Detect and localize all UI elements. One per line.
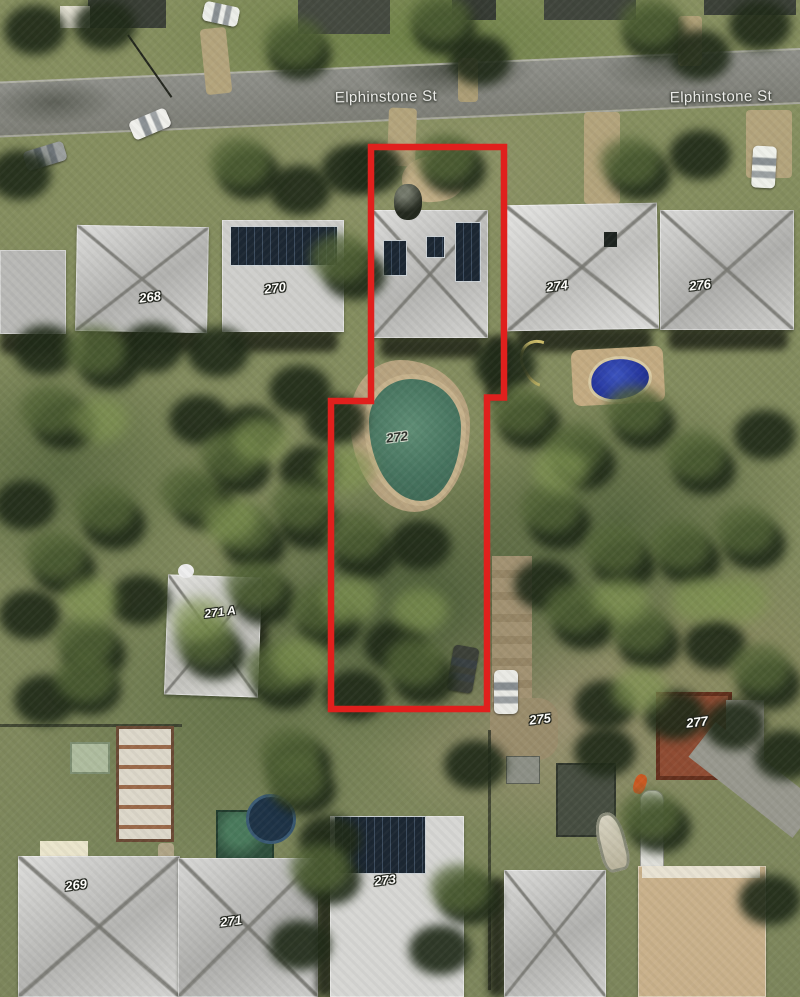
roof-top-carport <box>60 6 90 28</box>
roof-top-row-1 <box>88 0 166 28</box>
street-label-elphinstone-1: Elphinstone St <box>335 88 438 107</box>
roof-top-row-5 <box>704 0 796 15</box>
driveway-274 <box>584 112 620 204</box>
car-white-verge <box>751 145 777 188</box>
roof-271a <box>164 574 262 697</box>
car-gray <box>22 140 68 171</box>
solar-panels-270 <box>230 226 338 266</box>
roof-276 <box>660 210 794 330</box>
roof-top-row-4 <box>544 0 636 20</box>
street-label-elphinstone-2: Elphinstone St <box>670 88 773 107</box>
roof-271 <box>178 858 318 997</box>
roof-edge-white <box>642 866 760 878</box>
lot-label-271: 271 <box>219 912 242 930</box>
roof-bottom-right-tan <box>638 866 766 997</box>
car-dark-driveway <box>446 644 480 694</box>
footpath-top-2 <box>678 16 702 66</box>
greenhouse <box>70 742 110 774</box>
solar-panels-273 <box>334 816 426 874</box>
lot-label-269: 269 <box>64 876 87 894</box>
roof-269 <box>18 856 180 997</box>
shadow <box>486 336 512 402</box>
solar-panels-272-c <box>426 236 445 258</box>
roof-partial-left <box>0 250 66 334</box>
satellite-dish-271a <box>178 564 194 578</box>
driveway-top-1 <box>200 27 233 95</box>
caravan-white <box>640 790 664 878</box>
roof-vent-274 <box>604 232 617 247</box>
shadow <box>0 332 60 354</box>
boat <box>591 810 633 875</box>
footpath-top-1 <box>458 58 478 102</box>
solar-panels-272-b <box>383 240 407 276</box>
water-tank-272 <box>394 184 422 220</box>
lot-label-272: 272 <box>385 428 408 446</box>
lot-label-274: 274 <box>545 277 568 295</box>
lot-label-273: 273 <box>373 871 396 889</box>
lot-label-277: 277 <box>685 713 708 731</box>
path-lot-272 <box>387 108 417 167</box>
car-white-driveway <box>494 670 518 714</box>
lot-label-276: 276 <box>688 276 711 294</box>
roof-top-row-3 <box>452 0 496 20</box>
roof-bottom-right-gray <box>504 870 606 997</box>
van-white-top <box>201 0 240 27</box>
roof-268 <box>75 225 209 333</box>
lot-label-275: 275 <box>528 710 551 728</box>
solar-panels-272-a <box>455 222 481 282</box>
shadow <box>228 330 338 352</box>
roof-top-row-2 <box>298 0 390 34</box>
lot-label-268: 268 <box>138 288 161 306</box>
shed-small <box>506 756 540 784</box>
roof-274 <box>505 203 659 332</box>
shadow <box>380 336 484 358</box>
trampoline <box>246 794 296 844</box>
lot-label-270: 270 <box>263 279 286 297</box>
shed-container <box>116 726 174 842</box>
shadow <box>668 328 788 350</box>
aerial-map: Elphinstone St Elphinstone St 268 270 27… <box>0 0 800 997</box>
